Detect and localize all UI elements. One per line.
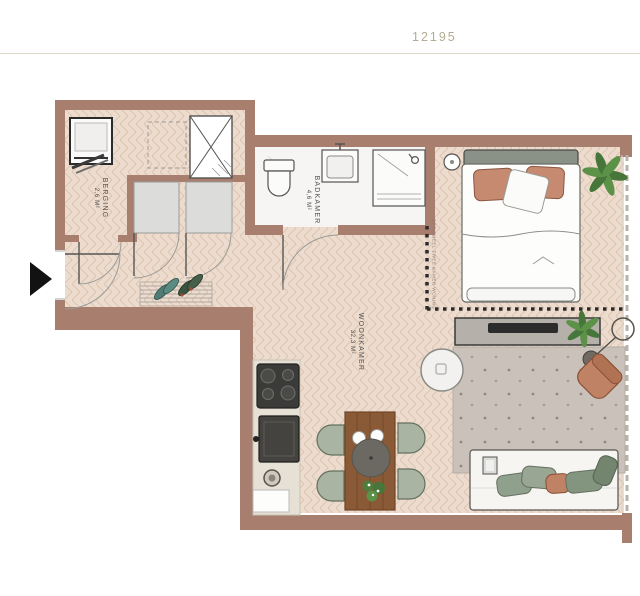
cooktop-icon [257, 364, 299, 408]
oven-icon [253, 416, 299, 462]
dining-chair-icon [398, 469, 425, 499]
double-bed-icon [462, 150, 580, 302]
optional-room-annotation: OPTIONEEL TWEE KAMER WONING [432, 219, 437, 310]
wardrobe-icon [134, 182, 179, 233]
shower-icon [373, 150, 425, 206]
dining-chair-icon [317, 471, 344, 501]
alarm-clock-icon [444, 154, 460, 170]
dining-chair-icon [317, 425, 344, 455]
room-name: WOONKAMER [355, 313, 364, 371]
kitchen [253, 360, 300, 515]
kitchen-cabinet [253, 490, 289, 512]
room-label-badkamer: BADKAMER 4,6 M² [304, 176, 320, 225]
room-label-berging: BERGING 2,6 M² [92, 178, 108, 219]
wardrobe-icon [186, 182, 232, 233]
floorplan-page: 12195 [0, 0, 640, 596]
plan-number: 12195 [412, 30, 457, 44]
room-name: BADKAMER [311, 176, 320, 225]
room-area: 2,6 M² [92, 178, 100, 219]
ventilation-shaft-icon [190, 116, 232, 178]
washing-machine-icon [70, 118, 112, 173]
sofa-icon [470, 450, 620, 510]
room-label-woonkamer: WOONKAMER 32,3 M² [348, 313, 364, 371]
room-area: 32,3 M² [348, 313, 356, 371]
sink-icon [264, 470, 280, 486]
room-name: BERGING [99, 178, 108, 219]
coffee-table-icon [421, 349, 463, 391]
washbasin-icon [322, 144, 358, 182]
divider-line [0, 53, 640, 54]
floor-plan [0, 76, 640, 596]
room-area: 4,6 M² [304, 176, 312, 225]
dining-chair-icon [398, 423, 425, 453]
entrance-arrow-icon [30, 262, 52, 296]
